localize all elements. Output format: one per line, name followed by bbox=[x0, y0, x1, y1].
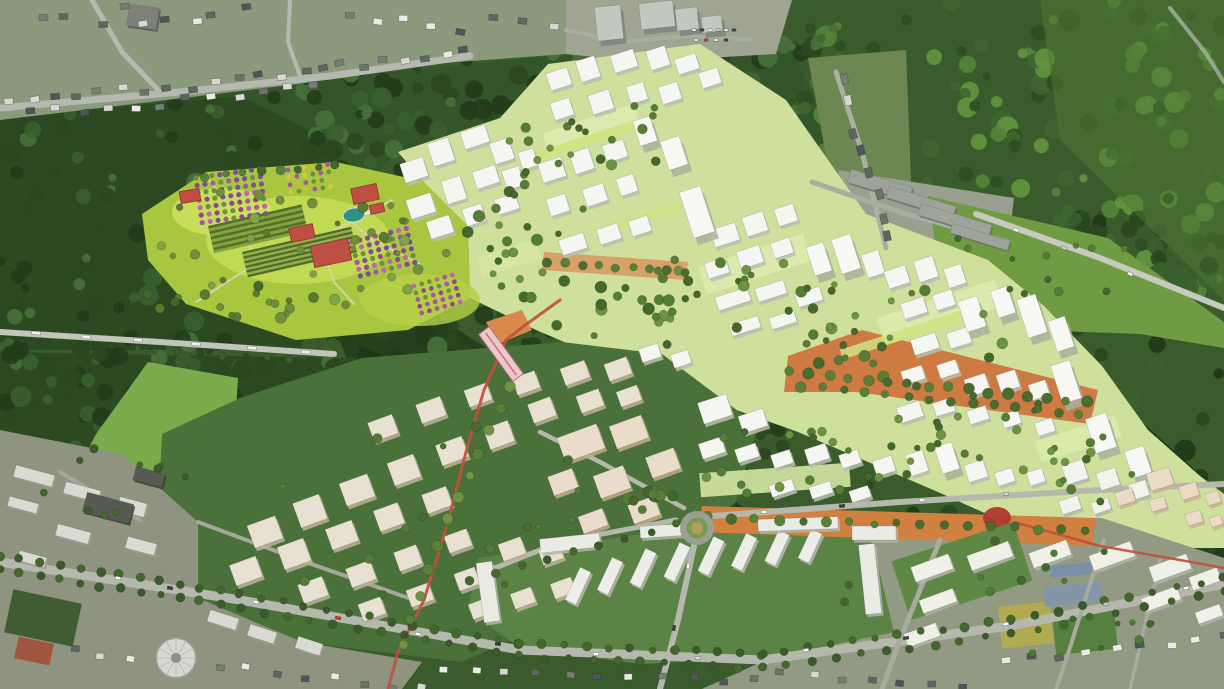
car bbox=[191, 342, 200, 346]
car bbox=[761, 510, 767, 513]
car bbox=[694, 39, 698, 42]
car bbox=[692, 29, 696, 32]
car bbox=[686, 563, 690, 569]
car bbox=[415, 632, 421, 636]
car bbox=[803, 648, 809, 652]
car bbox=[839, 504, 845, 507]
aerial-masterplan-rendering: Bird's-eye architectural visualization: … bbox=[0, 0, 1224, 689]
car bbox=[732, 29, 736, 32]
car bbox=[716, 29, 720, 32]
car bbox=[301, 350, 310, 354]
car bbox=[708, 29, 712, 32]
car bbox=[495, 642, 501, 646]
car bbox=[593, 652, 599, 655]
car bbox=[81, 335, 90, 339]
car bbox=[724, 39, 728, 42]
car bbox=[31, 331, 40, 335]
aerial-view-image bbox=[0, 0, 1224, 689]
car bbox=[1003, 492, 1009, 495]
car bbox=[672, 625, 676, 631]
suburb-landmark bbox=[127, 4, 161, 32]
car bbox=[115, 576, 121, 580]
car bbox=[695, 657, 701, 660]
car bbox=[714, 39, 718, 42]
car bbox=[903, 636, 909, 640]
car bbox=[1003, 622, 1009, 626]
car bbox=[704, 39, 708, 42]
car bbox=[700, 29, 704, 32]
car bbox=[724, 29, 728, 32]
car bbox=[167, 586, 173, 590]
circular-hall bbox=[156, 638, 196, 678]
roundabout bbox=[680, 511, 714, 545]
car bbox=[133, 338, 142, 342]
car bbox=[919, 498, 925, 501]
car bbox=[247, 346, 256, 350]
